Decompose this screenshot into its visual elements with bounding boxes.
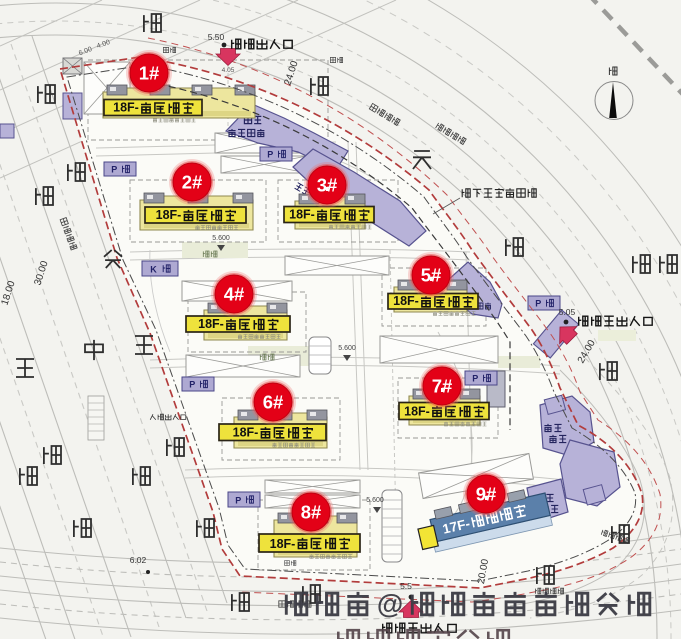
- svg-text:18F-: 18F-: [289, 207, 315, 221]
- svg-text:5.05: 5.05: [559, 307, 576, 317]
- svg-text:1#: 1#: [139, 63, 160, 84]
- svg-text:5.600: 5.600: [338, 345, 356, 352]
- svg-text:3#: 3#: [317, 175, 338, 196]
- svg-text:18F-: 18F-: [233, 425, 259, 439]
- svg-text:P: P: [535, 299, 541, 309]
- svg-text:18F-: 18F-: [404, 404, 430, 418]
- svg-text:5.600: 5.600: [212, 235, 230, 242]
- svg-text:18F-: 18F-: [270, 537, 296, 551]
- svg-text:4.05: 4.05: [222, 67, 235, 74]
- svg-text:4#: 4#: [224, 284, 245, 305]
- svg-text:P: P: [235, 496, 241, 506]
- svg-text:P: P: [111, 165, 117, 175]
- svg-text:6.02: 6.02: [130, 555, 147, 565]
- svg-text:P: P: [189, 380, 195, 390]
- svg-text:P: P: [472, 374, 478, 384]
- svg-text:P: P: [267, 150, 273, 160]
- svg-text:6#: 6#: [263, 392, 284, 413]
- svg-text:5.50: 5.50: [208, 32, 225, 42]
- svg-text:18F-: 18F-: [198, 317, 224, 331]
- svg-text:5#: 5#: [421, 265, 442, 286]
- svg-text:8#: 8#: [301, 502, 322, 523]
- svg-text:7#: 7#: [432, 376, 453, 397]
- svg-text:9#: 9#: [476, 484, 497, 505]
- svg-text:@: @: [377, 589, 403, 619]
- svg-text:K: K: [150, 265, 157, 275]
- svg-text:2#: 2#: [182, 172, 203, 193]
- svg-text:18F-: 18F-: [393, 294, 419, 308]
- svg-text:5.600: 5.600: [366, 497, 384, 504]
- svg-text:18F-: 18F-: [156, 208, 182, 222]
- svg-text:18F-: 18F-: [113, 100, 139, 114]
